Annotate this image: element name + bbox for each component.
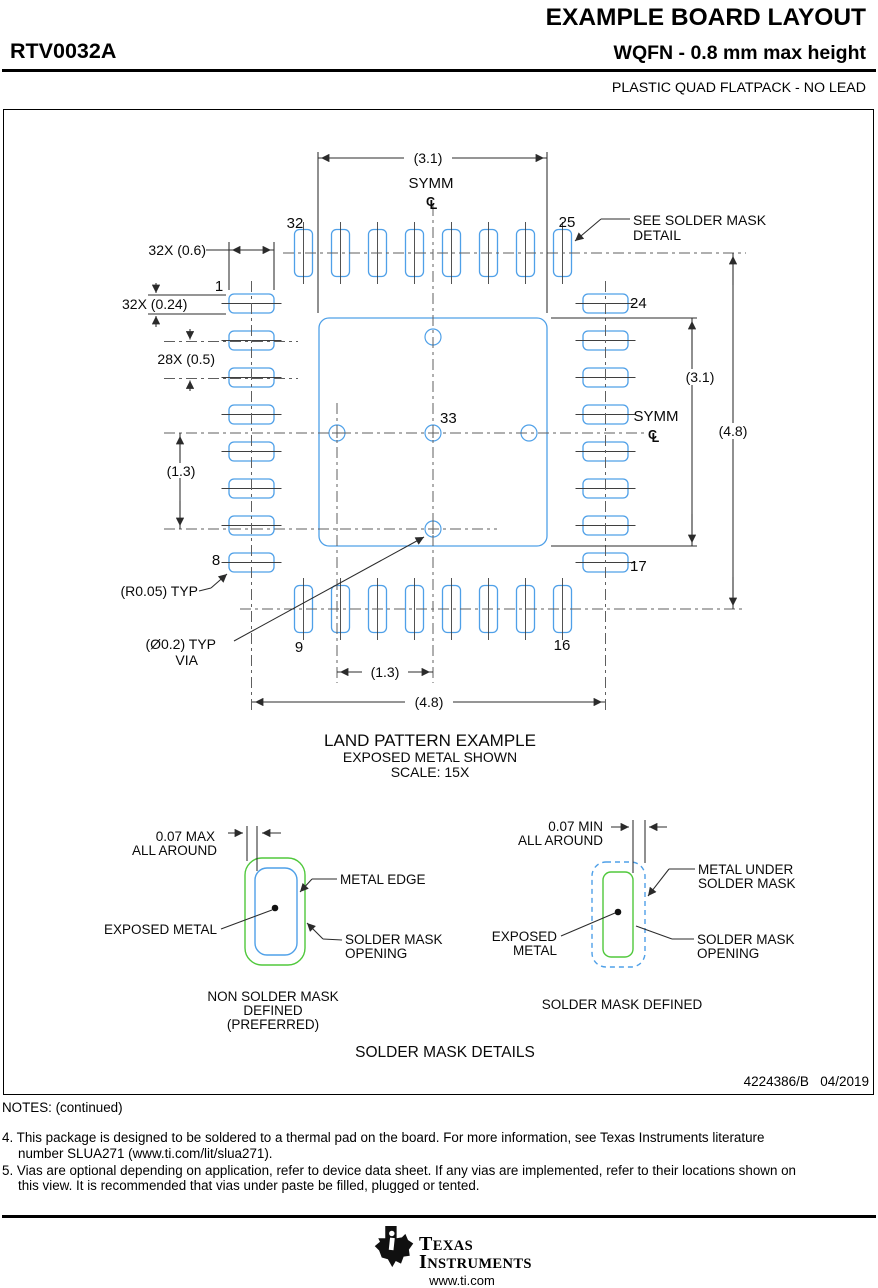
svg-text:L: L [652,431,660,445]
metal-edge-label: METAL EDGE [340,872,426,887]
smd-caption: SOLDER MASK DEFINED [542,997,703,1012]
metal-under-line2: SOLDER MASK [698,876,796,891]
nsmd-dim-line1: 0.07 MAX [156,829,215,844]
dim-corner-radius: (R0.05) TYP [120,583,198,599]
pin-1: 1 [215,278,223,295]
nsmd-detail-diagram: 0.07 MAX ALL AROUND METAL EDGE EXPOSED M… [104,826,443,1032]
dim-via-pitch-v: (1.3) [167,463,196,479]
nsmd-caption-line2: DEFINED [243,1003,303,1018]
note-item-4: 4. This package is designed to be solder… [2,1130,808,1161]
pin-17: 17 [630,558,647,575]
smd-opening-line2: OPENING [697,946,759,961]
board-layout-drawing: (3.1) (3.1) (4.8) (4.8) (1.3) (1.3) 32X … [0,0,878,1288]
revision-code: 4224386/B 04/2019 [744,1074,869,1089]
nsmd-dim-line2: ALL AROUND [132,843,217,858]
dim-outer-height: (4.8) [719,423,748,439]
dim-right-height: (3.1) [686,369,715,385]
pin-25: 25 [559,214,576,231]
symm-top-label: SYMM [409,175,454,192]
land-pattern-subcaption: EXPOSED METAL SHOWN [343,749,517,765]
dim-pad-width: 32X (0.24) [122,296,187,312]
dim-outer-width: (4.8) [415,694,444,710]
ti-logo-icon [374,1226,414,1268]
brand-instruments: INSTRUMENTS [419,1251,532,1274]
dim-via-pitch-h: (1.3) [371,664,400,680]
metal-under-line1: METAL UNDER [698,862,794,877]
exposed-metal-dot [615,909,622,916]
dim-pad-length: 32X (0.6) [148,242,206,258]
smd-dim-line2: ALL AROUND [518,833,603,848]
pin-33: 33 [440,410,457,427]
exposed-metal-dot [272,905,279,912]
symm-right-label: SYMM [634,408,679,425]
pin-32: 32 [287,215,304,232]
footer-rule [2,1215,876,1218]
pin-16: 16 [554,637,571,654]
smd-exposed-line2: METAL [513,943,557,958]
pin-9: 9 [295,639,303,656]
smd-detail-diagram: 0.07 MIN ALL AROUND METAL UNDER SOLDER M… [492,819,796,1012]
nsmd-opening-line2: OPENING [345,946,407,961]
smd-opening-line1: SOLDER MASK [697,932,795,947]
land-pattern-caption: LAND PATTERN EXAMPLE [324,731,536,750]
dim-via-diameter: (Ø0.2) TYP [145,636,216,652]
see-solder-mask-line1: SEE SOLDER MASK [633,212,767,228]
svg-text:L: L [430,198,438,212]
dim-pad-pitch: 28X (0.5) [157,351,215,367]
exposed-metal-label: EXPOSED METAL [104,922,218,937]
smd-exposed-line1: EXPOSED [492,929,558,944]
solder-mask-details-title: SOLDER MASK DETAILS [355,1044,535,1061]
website-link[interactable]: www.ti.com [401,1273,523,1288]
pin-24: 24 [630,295,647,312]
land-pattern-scale: SCALE: 15X [391,764,470,780]
dim-top-width: (3.1) [414,150,443,166]
note-item-5: 5. Vias are optional depending on applic… [2,1163,808,1194]
nsmd-caption-line1: NON SOLDER MASK [207,989,338,1004]
dim-via-word: VIA [175,652,198,668]
notes-section: NOTES: (continued) 4. This package is de… [2,1100,808,1195]
pin-8: 8 [212,552,220,569]
nsmd-caption-line3: (PREFERRED) [227,1017,319,1032]
smd-dim-line1: 0.07 MIN [548,819,603,834]
notes-heading: NOTES: (continued) [2,1100,808,1115]
nsmd-opening-line1: SOLDER MASK [345,932,443,947]
datasheet-page: EXAMPLE BOARD LAYOUT RTV0032A WQFN - 0.8… [0,0,878,1288]
see-solder-mask-line2: DETAIL [633,227,681,243]
